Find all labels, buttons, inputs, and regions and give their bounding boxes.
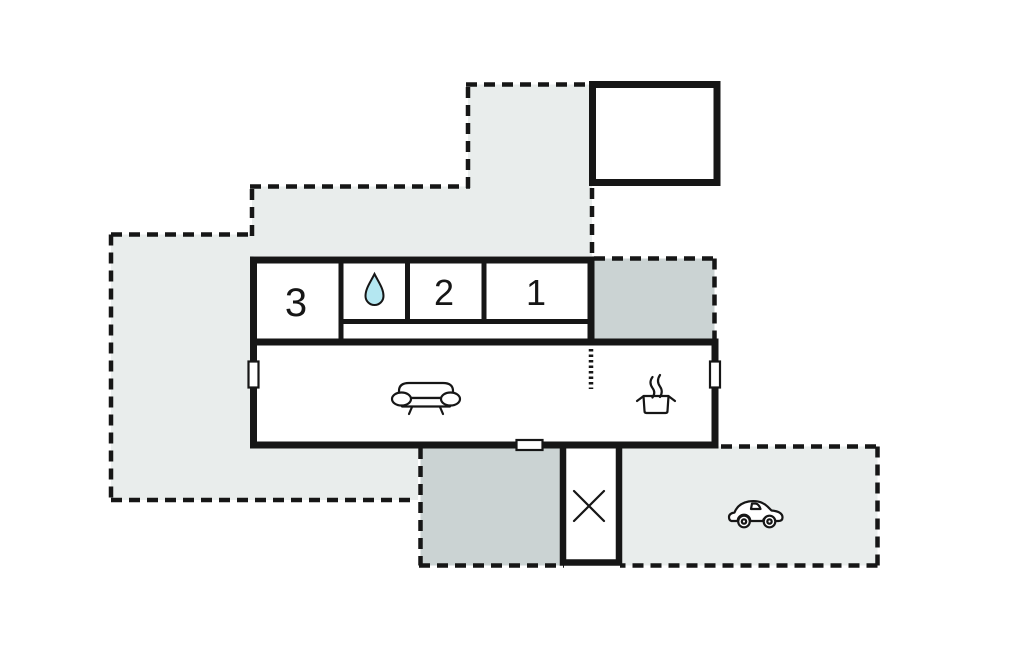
door-marker-right <box>710 362 720 388</box>
floor-plan-page: 3 2 1 <box>0 0 1024 652</box>
entrance-hall <box>574 491 604 521</box>
door-marker-left <box>249 362 259 388</box>
bedroom-3: 3 <box>285 281 307 325</box>
garage-walls <box>593 85 718 183</box>
bedroom-2-label: 2 <box>434 272 454 313</box>
bedroom-1: 1 <box>526 272 546 313</box>
bedroom-1-label: 1 <box>526 272 546 313</box>
floor-plan: 3 2 1 <box>0 0 1024 652</box>
garage <box>593 85 718 183</box>
bedroom-2: 2 <box>434 272 454 313</box>
terrace <box>421 447 564 566</box>
covered-terrace-fill <box>594 259 715 343</box>
bedroom-3-label: 3 <box>285 281 307 325</box>
terrace-fill <box>421 447 564 566</box>
door-marker-bottom <box>517 440 543 450</box>
entrance-cross-icon <box>574 491 604 521</box>
covered-terrace <box>594 259 715 343</box>
